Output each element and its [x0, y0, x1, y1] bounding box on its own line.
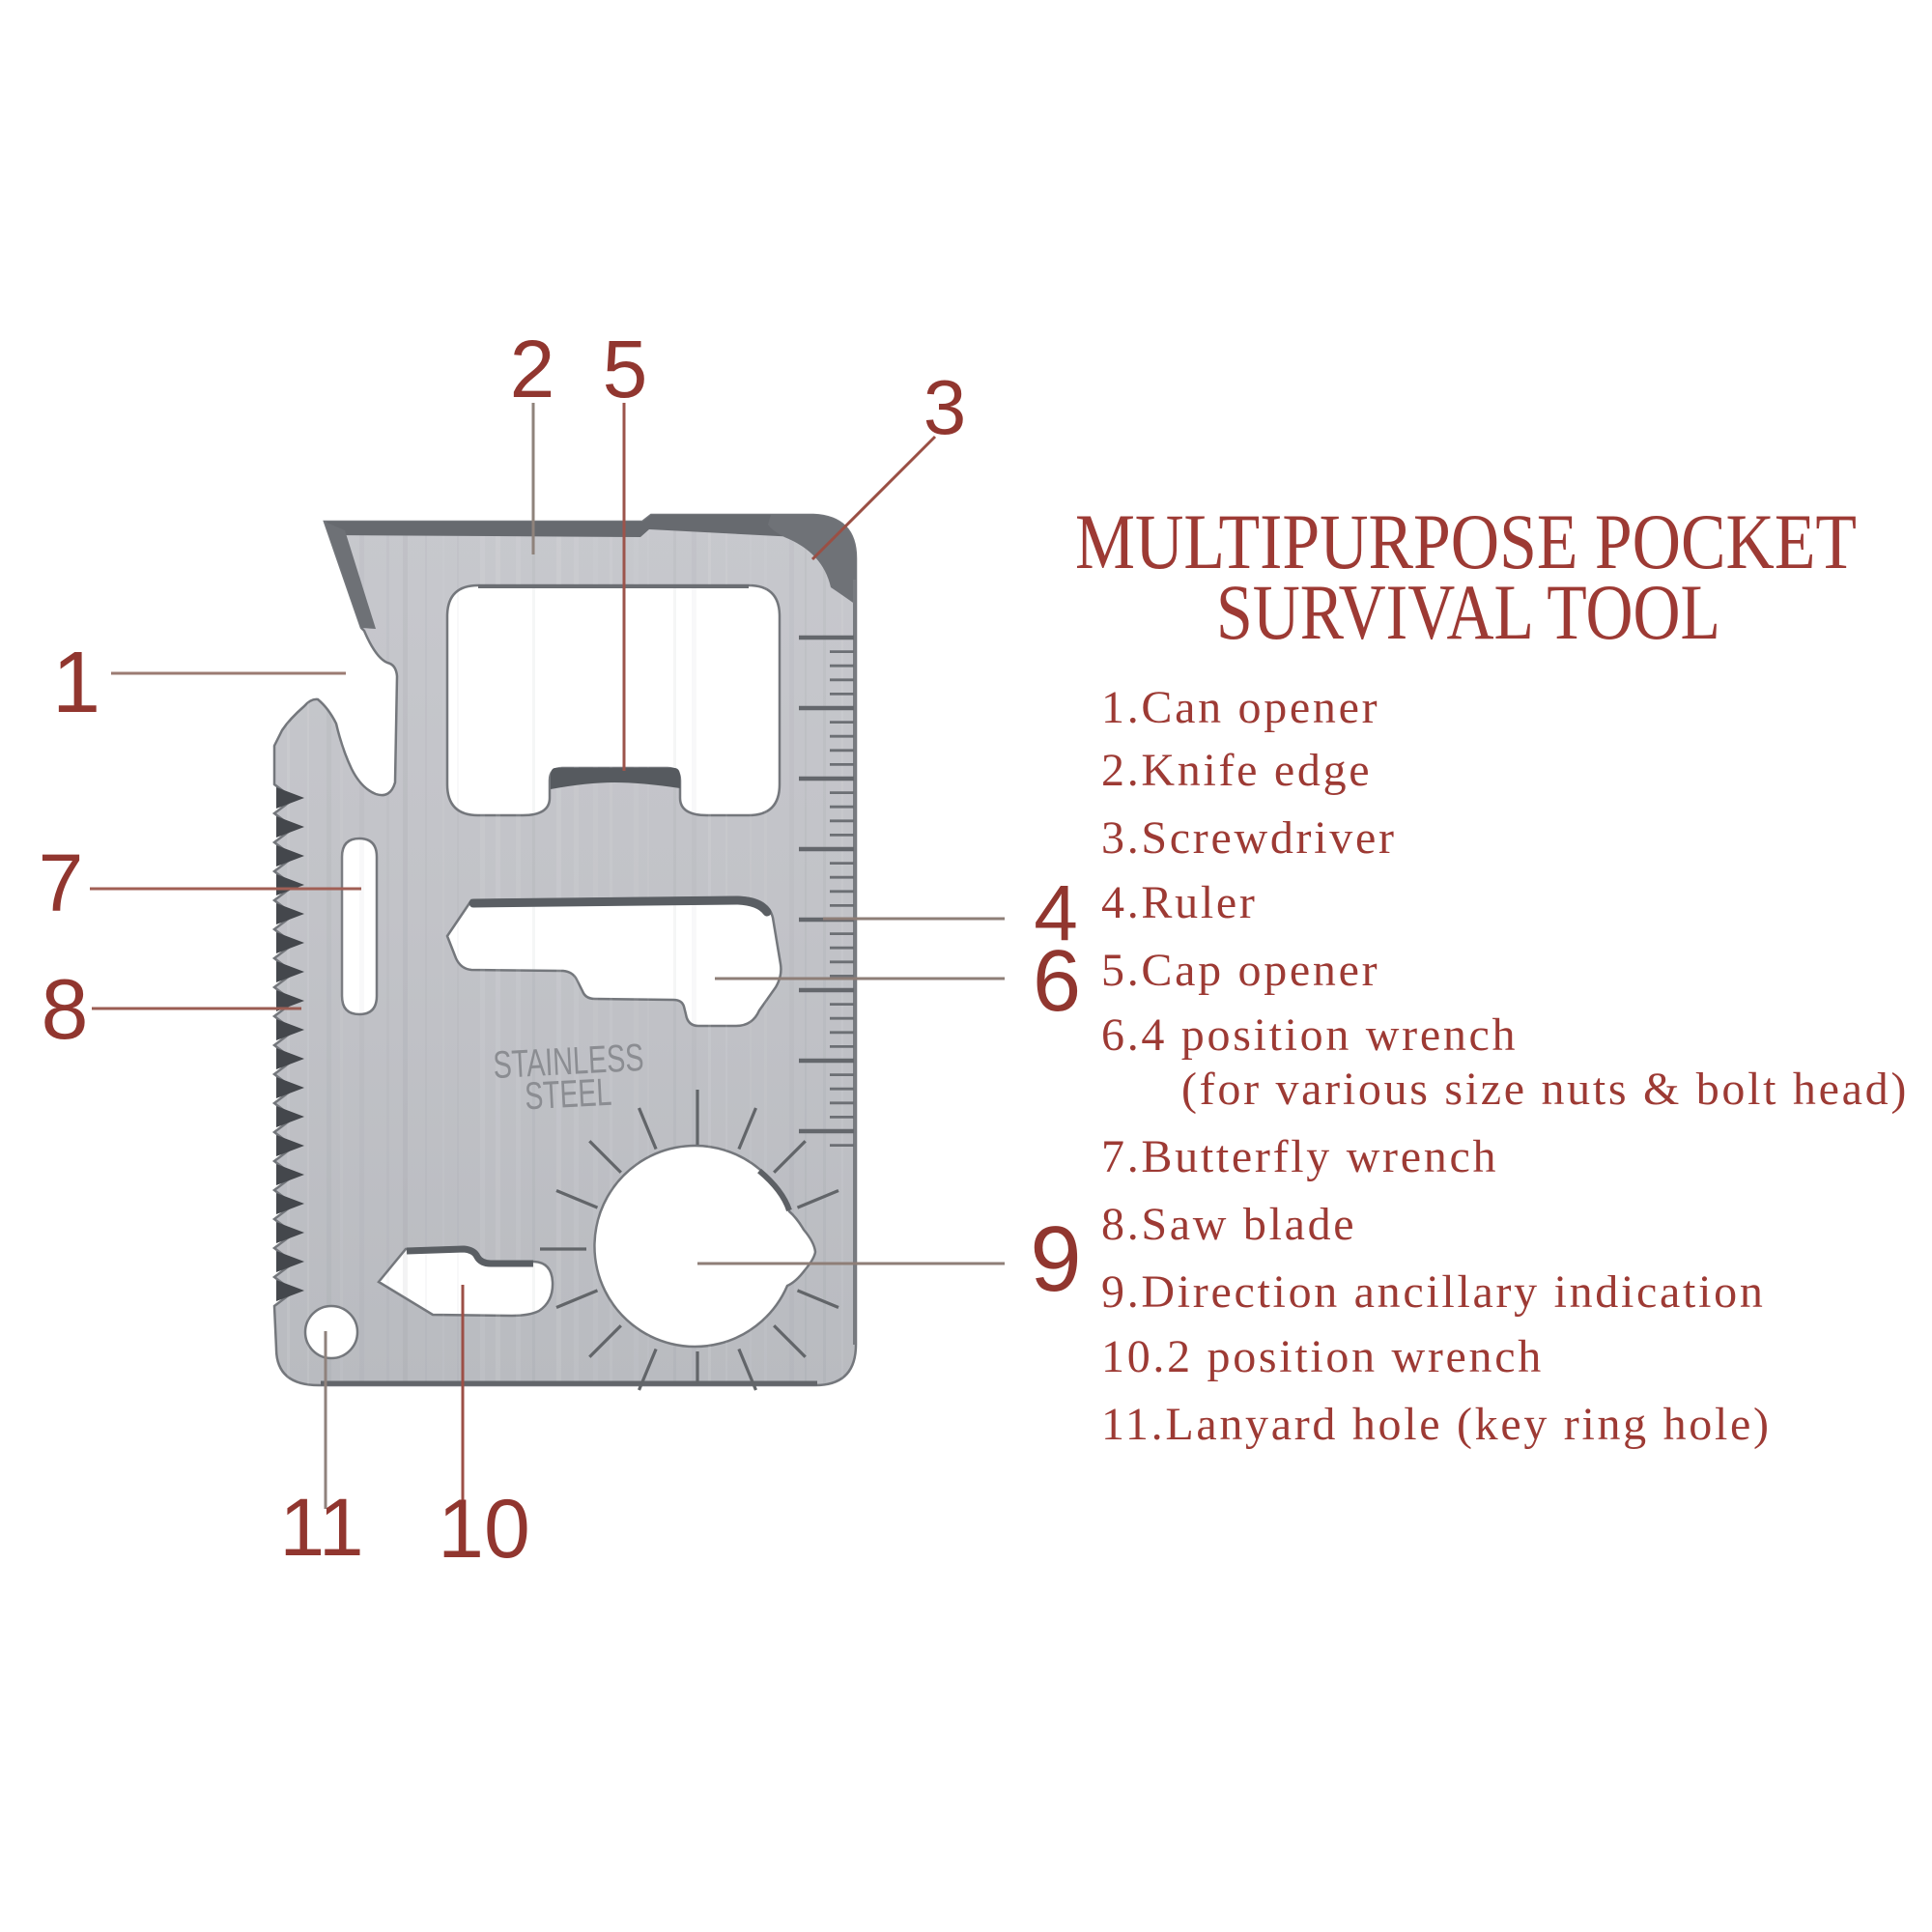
- svg-text:3.Screwdriver: 3.Screwdriver: [1101, 812, 1397, 864]
- svg-text:4.Ruler: 4.Ruler: [1101, 877, 1258, 928]
- svg-text:6: 6: [1033, 933, 1081, 1030]
- svg-text:11: 11: [279, 1482, 363, 1573]
- svg-text:5: 5: [603, 324, 648, 414]
- svg-text:(for various size nuts & bolt: (for various size nuts & bolt head): [1181, 1064, 1909, 1115]
- svg-text:3: 3: [923, 364, 967, 450]
- svg-text:SURVIVAL TOOL: SURVIVAL TOOL: [1216, 568, 1720, 656]
- svg-text:9: 9: [1030, 1207, 1081, 1311]
- svg-text:2.Knife edge: 2.Knife edge: [1101, 745, 1372, 796]
- svg-text:6.4 position wrench: 6.4 position wrench: [1101, 1009, 1518, 1061]
- svg-text:10.2 position wrench: 10.2 position wrench: [1101, 1331, 1544, 1382]
- svg-text:9.Direction ancillary indicati: 9.Direction ancillary indication: [1101, 1266, 1766, 1318]
- svg-text:2: 2: [510, 324, 555, 414]
- svg-text:STEEL: STEEL: [524, 1071, 612, 1119]
- svg-text:7.Butterfly wrench: 7.Butterfly wrench: [1101, 1131, 1498, 1182]
- svg-text:8: 8: [42, 961, 89, 1057]
- svg-text:8.Saw blade: 8.Saw blade: [1101, 1199, 1356, 1250]
- svg-text:1.Can opener: 1.Can opener: [1101, 682, 1379, 733]
- svg-text:5.Cap opener: 5.Cap opener: [1101, 945, 1379, 996]
- svg-text:11.Lanyard hole (key ring hole: 11.Lanyard hole (key ring hole): [1101, 1399, 1772, 1450]
- svg-text:1: 1: [52, 635, 100, 731]
- svg-text:10: 10: [438, 1483, 530, 1576]
- svg-text:7: 7: [39, 838, 84, 928]
